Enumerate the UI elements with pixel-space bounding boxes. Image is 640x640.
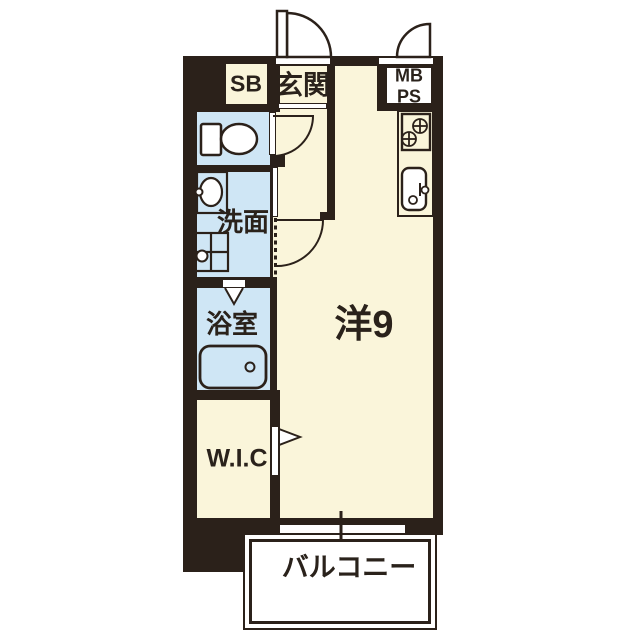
wall-hall-right-cap: [320, 212, 335, 220]
room-bathroom: [197, 288, 270, 390]
entrance-step-edge: [278, 103, 327, 109]
entrance-threshold: [275, 57, 331, 65]
meter-box-door-swing-icon: [397, 24, 430, 57]
toilet-doorway: [269, 112, 276, 155]
wall-bathroom-right: [270, 277, 277, 390]
balcony-label: バルコニー: [282, 555, 416, 582]
room-toilet: [197, 112, 270, 165]
shoe-box-label: SB: [230, 73, 262, 96]
wall-hall-stub: [270, 155, 285, 167]
walk-in-closet-label: W.I.C: [206, 447, 267, 472]
meter-box-label: MB: [395, 67, 423, 85]
pipe-space-label: PS: [397, 88, 421, 106]
washroom-label: 洗面: [217, 209, 269, 235]
door-arc: [287, 13, 331, 57]
window-opening: [280, 525, 405, 533]
floor-plan: SB 玄関 MB PS 洗面 浴室 W.I.C 洋9 バルコニー: [0, 0, 640, 640]
closet-doorway: [271, 426, 279, 476]
wall-bottom-left-block: [183, 518, 243, 572]
entrance-label: 玄関: [276, 73, 330, 100]
door-arc: [397, 24, 430, 57]
door-leaf: [277, 11, 287, 57]
wall-left: [183, 56, 197, 535]
meter-box-threshold: [378, 57, 434, 65]
bathroom-label: 浴室: [206, 311, 258, 337]
wall-right: [433, 56, 443, 535]
wall-bathroom-closet: [183, 390, 280, 400]
bathroom-doorway: [222, 279, 246, 288]
washroom-doorway: [272, 167, 278, 217]
wall-toilet-washroom: [183, 165, 277, 172]
entrance-door-swing-icon: [277, 11, 331, 57]
main-room-label: 洋9: [334, 306, 393, 344]
meter-pipe-label: MB PS: [395, 67, 423, 106]
